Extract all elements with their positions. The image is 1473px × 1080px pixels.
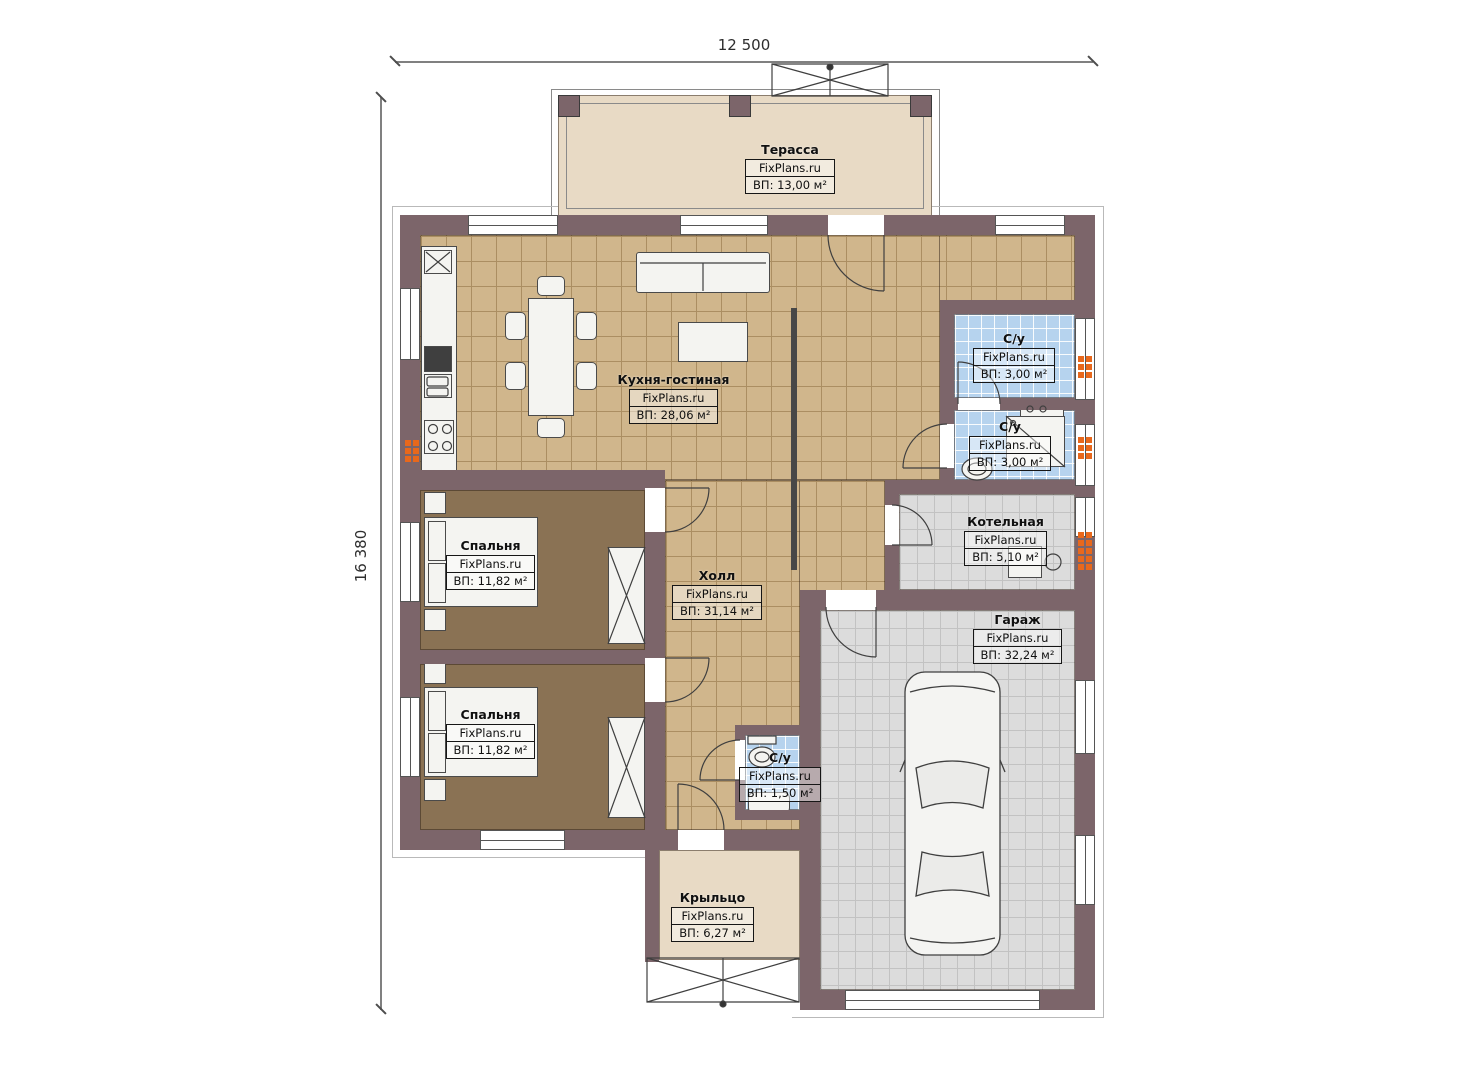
room-area: ВП: 3,00 м²	[974, 365, 1055, 382]
terrace-post	[729, 95, 751, 117]
stove	[424, 420, 454, 454]
kitchen-cabinet	[424, 250, 452, 274]
door-opening	[645, 488, 665, 532]
room-name: Холл	[647, 568, 787, 583]
room-area: ВП: 11,82 м²	[447, 572, 535, 589]
brand-label: FixPlans.ru	[970, 437, 1051, 453]
nightstand	[424, 662, 446, 684]
brand-label: FixPlans.ru	[673, 586, 761, 602]
radiator	[1078, 356, 1092, 378]
room-label-porch: Крыльцо FixPlans.ru ВП: 6,27 м²	[650, 890, 775, 942]
sofa	[636, 252, 770, 293]
room-name: С/у	[950, 419, 1070, 434]
room-name: Кухня-гостиная	[586, 372, 761, 387]
chair	[537, 276, 565, 296]
brand-label: FixPlans.ru	[630, 390, 718, 406]
tv-partition	[791, 308, 797, 570]
nightstand	[424, 609, 446, 631]
room-name: Спальня	[428, 707, 553, 722]
room-area: ВП: 31,14 м²	[673, 602, 761, 619]
room-label-bath1: С/у FixPlans.ru ВП: 3,00 м²	[954, 331, 1074, 383]
eave-line	[1103, 206, 1104, 1018]
room-label-bath2: С/у FixPlans.ru ВП: 3,00 м²	[950, 419, 1070, 471]
porch-steps	[647, 958, 799, 1007]
window	[400, 697, 420, 777]
window	[680, 215, 768, 235]
door-opening	[958, 398, 1000, 410]
wardrobe	[608, 547, 645, 644]
chair	[537, 418, 565, 438]
radiator	[405, 440, 419, 462]
room-area: ВП: 11,82 м²	[447, 741, 535, 758]
chair	[505, 312, 526, 340]
room-label-bedroom1: Спальня FixPlans.ru ВП: 11,82 м²	[428, 538, 553, 590]
dimension-label-height: 16 380	[352, 476, 370, 636]
room-name: Спальня	[428, 538, 553, 553]
dining-table	[528, 298, 574, 416]
radiator	[1078, 437, 1092, 459]
window	[480, 830, 565, 850]
kitchen-sink	[424, 374, 452, 398]
room-name: С/у	[954, 331, 1074, 346]
room-name: С/у	[730, 750, 830, 765]
radiator	[1078, 532, 1092, 570]
brand-label: FixPlans.ru	[965, 532, 1046, 548]
brand-label: FixPlans.ru	[974, 630, 1062, 646]
room-name: Гараж	[950, 612, 1085, 627]
room-label-garage: Гараж FixPlans.ru ВП: 32,24 м²	[950, 612, 1085, 664]
wall	[420, 650, 660, 664]
door-opening	[678, 830, 724, 850]
terrace-post	[558, 95, 580, 117]
room-area: ВП: 13,00 м²	[746, 176, 834, 193]
chair	[576, 312, 597, 340]
wall	[735, 725, 800, 735]
room-area: ВП: 32,24 м²	[974, 646, 1062, 663]
room-label-hall: Холл FixPlans.ru ВП: 31,14 м²	[647, 568, 787, 620]
garage-floor	[820, 610, 1075, 990]
window	[400, 522, 420, 602]
window	[1075, 497, 1095, 537]
door-opening	[826, 590, 876, 610]
room-area: ВП: 3,00 м²	[970, 453, 1051, 470]
wall	[885, 480, 1075, 494]
brand-label: FixPlans.ru	[974, 349, 1055, 365]
room-label-kitchen: Кухня-гостиная FixPlans.ru ВП: 28,06 м²	[586, 372, 761, 424]
room-label-wc: С/у FixPlans.ru ВП: 1,50 м²	[730, 750, 830, 802]
room-name: Терасса	[700, 142, 880, 157]
room-area: ВП: 5,10 м²	[965, 548, 1046, 565]
room-area: ВП: 6,27 м²	[672, 924, 753, 941]
wall	[400, 470, 665, 490]
window	[1075, 680, 1095, 754]
room-name: Крыльцо	[650, 890, 775, 905]
dimension-line-top	[395, 61, 1093, 63]
brand-label: FixPlans.ru	[746, 160, 834, 176]
window	[468, 215, 558, 235]
eave-line	[392, 857, 662, 858]
wardrobe	[608, 717, 645, 818]
room-label-terrace: Терасса FixPlans.ru ВП: 13,00 м²	[700, 142, 880, 194]
floor-plan-canvas: 12 500 16 380	[0, 0, 1473, 1080]
brand-label: FixPlans.ru	[740, 768, 821, 784]
window	[995, 215, 1065, 235]
nightstand	[424, 779, 446, 801]
eave-line	[392, 206, 393, 858]
dimension-line-left	[380, 97, 382, 1010]
room-label-bedroom2: Спальня FixPlans.ru ВП: 11,82 м²	[428, 707, 553, 759]
dimension-label-width: 12 500	[644, 36, 844, 54]
window	[1075, 835, 1095, 905]
chair	[505, 362, 526, 390]
door-opening	[828, 215, 884, 235]
brand-label: FixPlans.ru	[672, 908, 753, 924]
terrace-post	[910, 95, 932, 117]
room-name: Котельная	[943, 514, 1068, 529]
brand-label: FixPlans.ru	[447, 725, 535, 741]
garage-door	[845, 990, 1040, 1010]
fridge	[424, 346, 452, 372]
room-area: ВП: 1,50 м²	[740, 784, 821, 801]
door-opening	[885, 505, 899, 545]
eave-line	[792, 1017, 1104, 1018]
wall	[735, 810, 800, 820]
window	[400, 288, 420, 360]
room-label-boiler: Котельная FixPlans.ru ВП: 5,10 м²	[943, 514, 1068, 566]
nightstand	[424, 492, 446, 514]
brand-label: FixPlans.ru	[447, 556, 535, 572]
room-area: ВП: 28,06 м²	[630, 406, 718, 423]
door-opening	[645, 658, 665, 702]
coffee-table	[678, 322, 748, 362]
wall	[940, 300, 1075, 314]
